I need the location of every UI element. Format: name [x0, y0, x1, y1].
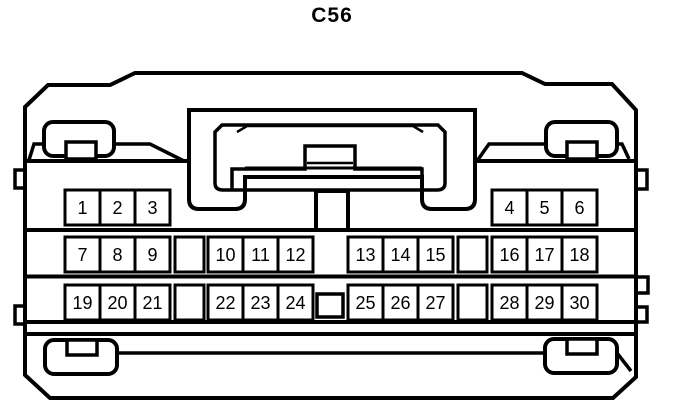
top-left-latch-notch	[66, 142, 96, 159]
pin-number: 28	[499, 293, 519, 313]
pin-number: 29	[534, 293, 554, 313]
pin-number: 12	[285, 245, 305, 265]
pin-number: 23	[250, 293, 270, 313]
connector-drawing: 1234567891011121314151617181920212223242…	[0, 0, 688, 416]
pin-number: 13	[355, 245, 375, 265]
pin-number: 27	[425, 293, 445, 313]
pin-number: 16	[499, 245, 519, 265]
pin-number: 15	[425, 245, 445, 265]
bottom-right-latch-notch	[567, 339, 597, 354]
pin-number: 19	[72, 293, 92, 313]
pin-number: 20	[107, 293, 127, 313]
pin-number: 5	[539, 198, 549, 218]
pin-number: 17	[534, 245, 554, 265]
pin-number: 30	[569, 293, 589, 313]
pin-number: 11	[251, 245, 270, 265]
pin-number: 6	[574, 198, 584, 218]
pin-number: 25	[355, 293, 375, 313]
pin-number: 8	[112, 245, 122, 265]
pin-number: 2	[112, 198, 122, 218]
pin-number: 1	[77, 198, 87, 218]
bottom-left-latch-notch	[67, 340, 97, 355]
pin-number: 24	[285, 293, 305, 313]
pin-number: 18	[569, 245, 589, 265]
pin-number: 22	[215, 293, 235, 313]
pin-number: 21	[142, 293, 162, 313]
pin-number: 14	[390, 245, 410, 265]
pin-number: 26	[390, 293, 410, 313]
pin-number: 9	[147, 245, 157, 265]
pin-number: 10	[215, 245, 235, 265]
top-right-latch-notch	[567, 142, 597, 159]
pin-number: 4	[504, 198, 514, 218]
pin-number: 7	[77, 245, 87, 265]
connector-diagram: C56	[0, 0, 688, 416]
pin-number: 3	[147, 198, 157, 218]
